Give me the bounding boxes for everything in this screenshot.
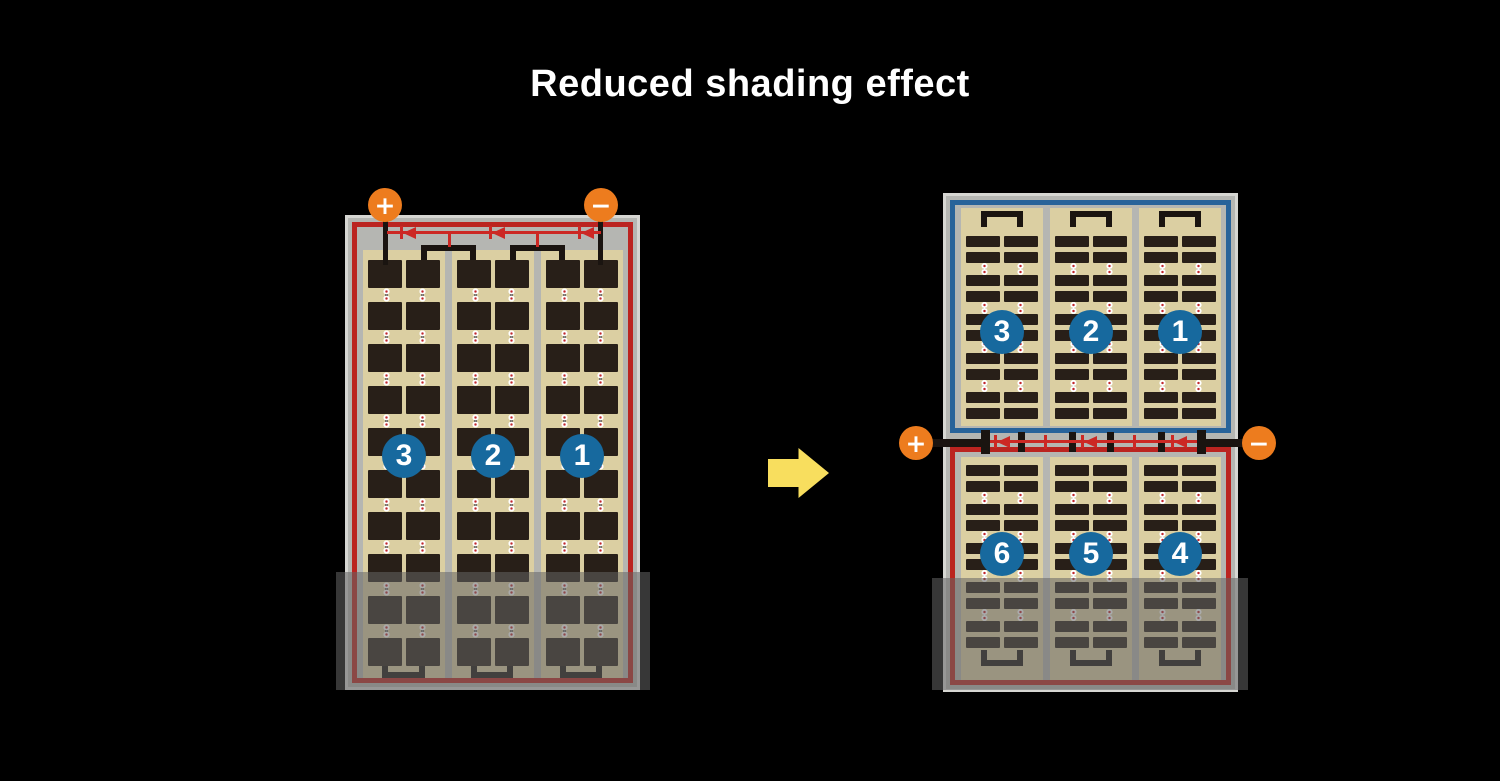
plus-terminal-icon: + <box>899 426 933 460</box>
diode-triangle <box>1174 436 1187 448</box>
bypass-diode-icon <box>1171 435 1187 448</box>
plus-terminal-icon: + <box>368 188 402 222</box>
cell-string-number-badge: 2 <box>471 434 515 478</box>
cell-string-number-badge: 1 <box>1158 310 1202 354</box>
diode-triangle <box>492 227 505 239</box>
negative-lead-wire <box>598 220 603 265</box>
string-connector-icon <box>1070 211 1112 227</box>
bypass-diode-icon <box>578 226 594 239</box>
diode-triangle <box>581 227 594 239</box>
diode-junction-tick <box>536 231 539 247</box>
cell-string-number-badge: 1 <box>560 434 604 478</box>
bypass-diode-icon <box>1081 435 1097 448</box>
diode-junction-tick <box>1044 435 1047 449</box>
cell-string-number-badge: 3 <box>980 310 1024 354</box>
cell-string-number-badge: 3 <box>382 434 426 478</box>
diagram-canvas: Reduced shading effect 3 2 1 + − 3 <box>0 0 1500 781</box>
cell-string-number-badge: 6 <box>980 532 1024 576</box>
minus-terminal-icon: − <box>584 188 618 222</box>
positive-lead-wire <box>383 220 388 265</box>
diode-junction-tick <box>448 231 451 247</box>
shading-overlay <box>932 578 1248 690</box>
minus-terminal-icon: − <box>1242 426 1276 460</box>
transition-arrow-icon <box>768 448 829 498</box>
negative-lead-wire <box>1206 439 1246 447</box>
diagram-title: Reduced shading effect <box>0 62 1500 108</box>
junction-bar <box>1197 430 1206 454</box>
cell-string-number-badge: 4 <box>1158 532 1202 576</box>
positive-lead-wire <box>931 439 988 447</box>
bypass-diode-icon <box>400 226 416 239</box>
string-connector-icon <box>1159 211 1201 227</box>
diode-triangle <box>997 436 1010 448</box>
bypass-diode-icon <box>489 226 505 239</box>
string-connector-icon <box>510 245 565 260</box>
diode-junction-tick <box>1133 435 1136 449</box>
shading-overlay <box>336 572 650 690</box>
bypass-diode-icon <box>994 435 1010 448</box>
diode-triangle <box>403 227 416 239</box>
cell-string-number-badge: 2 <box>1069 310 1113 354</box>
diode-triangle <box>1084 436 1097 448</box>
string-connector-icon <box>421 245 476 260</box>
string-connector-icon <box>981 211 1023 227</box>
cell-string-number-badge: 5 <box>1069 532 1113 576</box>
